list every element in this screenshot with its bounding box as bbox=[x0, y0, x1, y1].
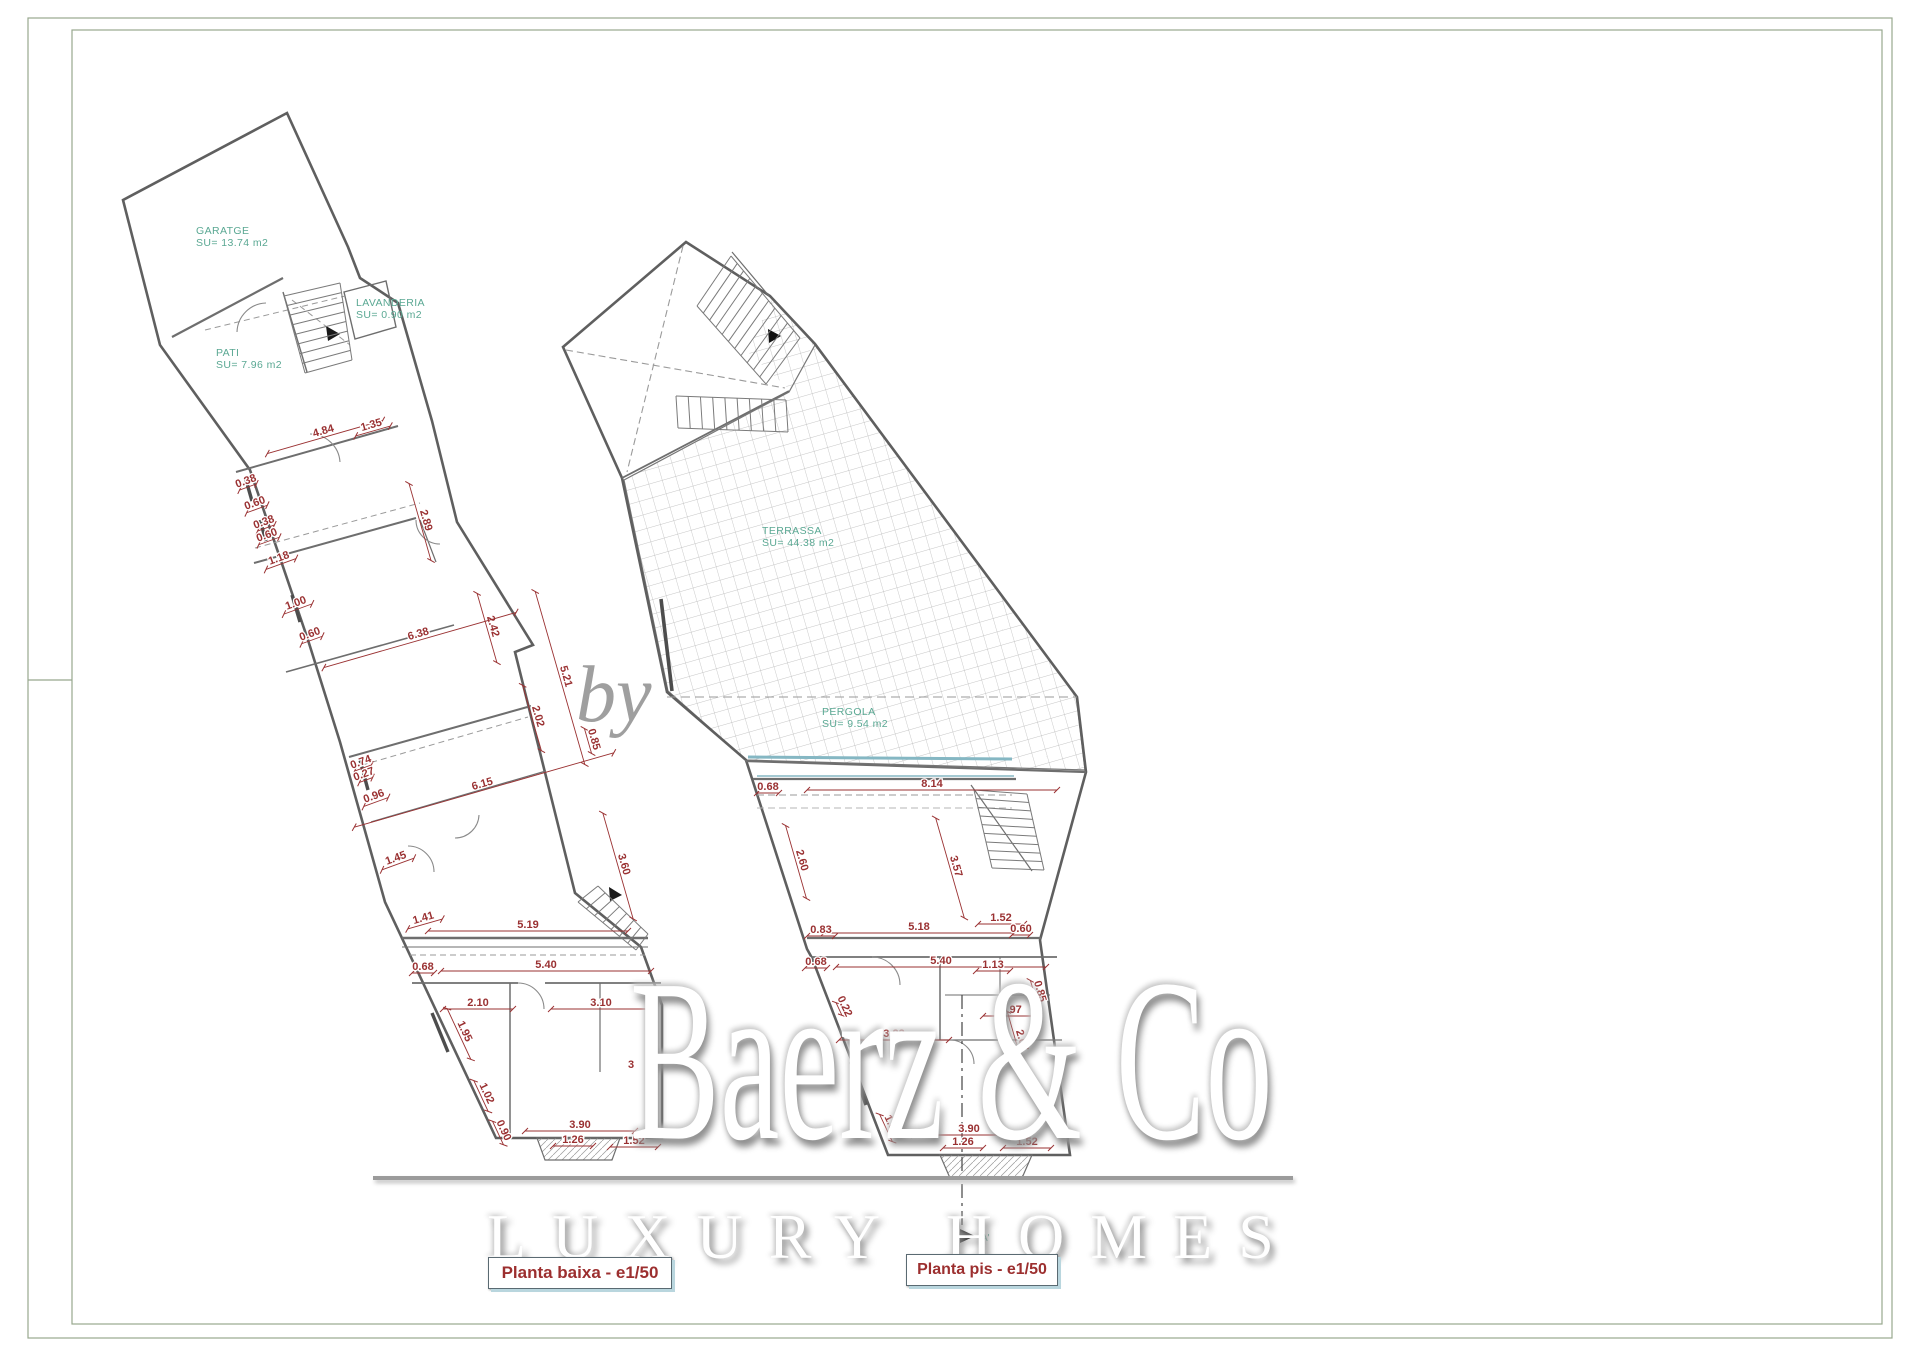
dimension: 3.57 bbox=[932, 812, 977, 922]
dimension-label: 2.10 bbox=[467, 997, 488, 1009]
dimension: 1.35 bbox=[350, 414, 395, 440]
svg-text:GARATGE: GARATGE bbox=[196, 225, 249, 237]
dimension-label: 0.68 bbox=[757, 781, 778, 793]
planta-baixa-stair-arrows bbox=[326, 326, 622, 901]
dimension: 2.10 bbox=[440, 997, 516, 1012]
dimension-label: 0.68 bbox=[412, 961, 433, 973]
svg-text:TERRASSA: TERRASSA bbox=[762, 525, 822, 537]
dimension-label: 1.52 bbox=[990, 912, 1011, 924]
dimension-label: 2.89 bbox=[417, 508, 434, 532]
svg-text:PERGOLA: PERGOLA bbox=[822, 706, 876, 718]
room-label: GARATGESU= 13.74 m2 bbox=[196, 225, 268, 249]
dimension-label: 5.19 bbox=[517, 919, 538, 931]
svg-text:PATI: PATI bbox=[216, 347, 239, 359]
svg-text:SU= 13.74 m2: SU= 13.74 m2 bbox=[196, 237, 268, 249]
dimension: 3.90 bbox=[522, 1119, 638, 1134]
drawing-sheet: GARATGESU= 13.74 m2PATISU= 7.96 m2LAVAND… bbox=[0, 0, 1920, 1357]
dimension: 1.45 bbox=[375, 846, 418, 874]
dimension: 1.95 bbox=[443, 1001, 483, 1064]
plan-title-planta-baixa: Planta baixa - e1/50 bbox=[488, 1257, 672, 1289]
dimension-label: 3.60 bbox=[615, 852, 632, 876]
dimension-label: 5.40 bbox=[535, 959, 556, 971]
dimension-label: 6.15 bbox=[470, 776, 494, 793]
planta-baixa-plan bbox=[123, 113, 662, 1160]
stair-flight bbox=[974, 790, 1044, 870]
dimension: 0.96 bbox=[357, 785, 392, 810]
dimension: 8.14 bbox=[804, 778, 1060, 793]
plan-title-label: Planta pis - e1/50 bbox=[917, 1261, 1047, 1279]
room-label: LAVANDERIASU= 0.90 m2 bbox=[356, 297, 425, 321]
dimension-label: 1.26 bbox=[562, 1134, 583, 1146]
dimension: 5.19 bbox=[425, 919, 631, 934]
svg-text:LAVANDERIA: LAVANDERIA bbox=[356, 297, 425, 309]
svg-text:SU= 7.96 m2: SU= 7.96 m2 bbox=[216, 359, 282, 371]
dimension: 6.15 bbox=[348, 740, 617, 830]
planta-baixa-door-arcs bbox=[237, 303, 544, 1009]
room-label: PATISU= 7.96 m2 bbox=[216, 347, 282, 371]
dimension: 0.60 bbox=[240, 493, 271, 517]
dimension: 5.40 bbox=[438, 959, 654, 974]
dimension-label: 8.14 bbox=[921, 778, 943, 790]
dimension: 0.68 bbox=[409, 961, 437, 976]
svg-text:SU= 9.54 m2: SU= 9.54 m2 bbox=[822, 718, 888, 730]
watermark-by: by bbox=[576, 650, 652, 741]
dimension: 2.89 bbox=[405, 477, 443, 564]
dimension-label: 3.57 bbox=[947, 854, 964, 878]
dimension-label: 6.38 bbox=[406, 626, 430, 643]
plan-title-label: Planta baixa - e1/50 bbox=[502, 1263, 659, 1283]
svg-text:SU= 44.38 m2: SU= 44.38 m2 bbox=[762, 537, 834, 549]
dimension-label: 1.41 bbox=[411, 910, 435, 927]
dimension-label: 3.10 bbox=[590, 997, 611, 1009]
dimension-label: 2.60 bbox=[793, 848, 810, 872]
watermark-brand: Baerz & Co bbox=[630, 966, 1273, 1156]
plan-title-planta-pis: Planta pis - e1/50 bbox=[906, 1254, 1058, 1286]
dimension-label: 2.42 bbox=[484, 614, 501, 638]
dimension-label: 5.21 bbox=[557, 664, 574, 688]
dimension: 1.41 bbox=[402, 907, 447, 933]
dimension-label: 3.90 bbox=[569, 1119, 590, 1131]
planta-baixa-outer-wall bbox=[123, 113, 662, 1138]
watermark-rule bbox=[373, 1176, 1293, 1180]
svg-text:SU= 0.90 m2: SU= 0.90 m2 bbox=[356, 309, 422, 321]
dimension-label: 4.84 bbox=[311, 422, 336, 440]
dimension: 2.02 bbox=[519, 679, 554, 754]
dimension-label: 2.02 bbox=[529, 704, 546, 728]
